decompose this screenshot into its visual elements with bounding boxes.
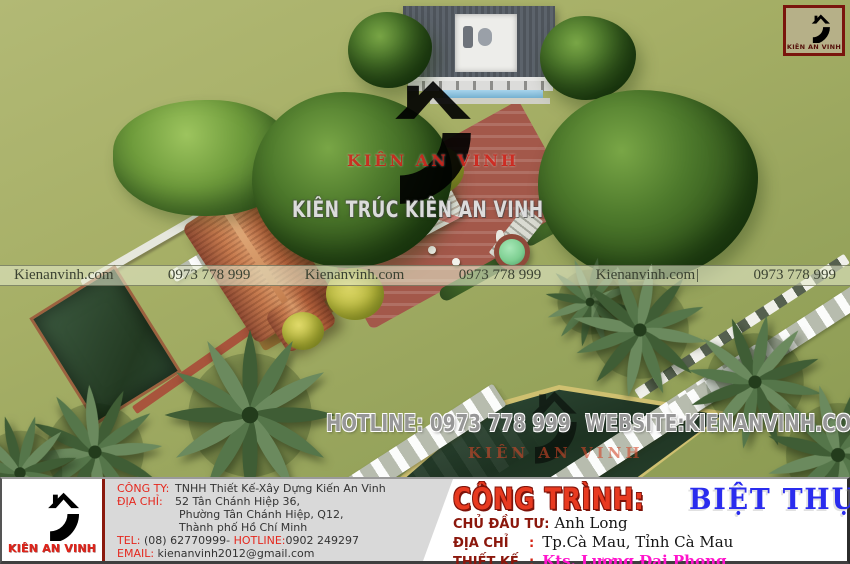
water-tank [478, 28, 492, 46]
project-address-label: ĐỊA CHỈ [453, 536, 529, 552]
kien-an-vinh-logo-icon: .boxL .arc{stroke:#4a0d08;} .boxL .cresc… [792, 10, 836, 43]
tel-row: TEL: (08) 62770999- HOTLINE:0902 249297 [117, 534, 453, 547]
colon: : [529, 536, 534, 552]
hotline-watermark: HOTLINE: 0973 778 999 WEBSITE:KIENANVINH… [326, 411, 850, 437]
watermark-logo-icon: .wmA .arc{stroke:rgba(40,40,40,.38);} .w… [315, 48, 485, 218]
band-website: Kienanvinh.com [14, 267, 114, 284]
project-title-row: CÔNG TRÌNH: BIỆT THỰ [453, 482, 847, 514]
address-line: 52 Tân Chánh Hiệp 36, [175, 495, 300, 508]
palm-tree [155, 320, 345, 477]
band-website: Kienanvinh.com [305, 267, 405, 284]
project-address-row: ĐỊA CHỈ : Tp.Cà Mau, Tỉnh Cà Mau [453, 534, 847, 552]
kien-an-vinh-logo-icon: .ftL .arc{stroke:#1a1a1a;} .ftL .crescen… [14, 485, 90, 541]
band-website: Kienanvinh.com| [596, 267, 700, 284]
website-text: WEBSITE:KIENANVINH.COM [585, 411, 850, 437]
band-phone: 0973 778 999 [168, 267, 251, 284]
architectural-render-image: .wmA .arc{stroke:rgba(40,40,40,.38);} .w… [0, 0, 850, 564]
tel-label: TEL: [117, 534, 141, 547]
address-label: ĐỊA CHỈ: [117, 495, 175, 508]
address-line: Thành phố Hồ Chí Minh [117, 521, 453, 534]
colon: : [529, 555, 534, 564]
designer-label: THIẾT KẾ [453, 555, 529, 564]
company-info-block: CÔNG TY:TNHH Thiết Kế-Xây Dựng Kiến An V… [105, 479, 453, 561]
address-row: ĐỊA CHỈ:52 Tân Chánh Hiệp 36, [117, 495, 453, 508]
watermark-title: KIÊN TRÚC KIÊN AN VINH [292, 198, 543, 223]
project-address-value: Tp.Cà Mau, Tỉnh Cà Mau [542, 534, 733, 550]
footer-divider [102, 479, 105, 561]
water-tank [463, 26, 473, 48]
hotline-value: 0902 249297 [285, 534, 358, 547]
band-phone: 0973 778 999 [754, 267, 837, 284]
project-label: CÔNG TRÌNH: [453, 485, 645, 514]
designer-value: Kts. Lương Đại Phong [542, 553, 726, 564]
tel-value: (08) 62770999- [144, 534, 230, 547]
email-value: kienanvinh2012@gmail.com [158, 547, 315, 560]
company-row: CÔNG TY:TNHH Thiết Kế-Xây Dựng Kiến An V… [117, 482, 453, 495]
company-name: TNHH Thiết Kế-Xây Dựng Kiến An Vinh [175, 482, 386, 495]
brand-name: KIÊN AN VINH [8, 542, 96, 555]
brand-logo-box: .boxL .arc{stroke:#4a0d08;} .boxL .cresc… [783, 5, 845, 56]
contact-watermark-band: Kienanvinh.com 0973 778 999 Kienanvinh.c… [0, 265, 850, 286]
company-label: CÔNG TY: [117, 482, 175, 495]
footer-logo-block: .ftL .arc{stroke:#1a1a1a;} .ftL .crescen… [2, 479, 102, 561]
watermark-brand-text: KIÊN AN VINH [347, 151, 519, 170]
pergola-column [428, 246, 436, 254]
text-cursor: | [696, 267, 699, 283]
owner-label: CHỦ ĐẦU TƯ: [453, 517, 549, 533]
hotline-label: HOTLINE: [234, 534, 286, 547]
brand-name: KIÊN AN VINH [787, 43, 841, 51]
info-footer: .ftL .arc{stroke:#1a1a1a;} .ftL .crescen… [0, 477, 850, 564]
email-row: EMAIL: kienanvinh2012@gmail.com [117, 547, 453, 560]
project-value: BIỆT THỰ [689, 484, 850, 514]
owner-value: Anh Long [554, 515, 627, 531]
hotline-text: HOTLINE: 0973 778 999 [326, 411, 571, 437]
watermark-brand-text: KIÊN AN VINH [468, 444, 644, 462]
owner-row: CHỦ ĐẦU TƯ: Anh Long [453, 515, 847, 533]
designer-row: THIẾT KẾ : Kts. Lương Đại Phong [453, 553, 847, 564]
email-label: EMAIL: [117, 547, 154, 560]
project-info-block: CÔNG TRÌNH: BIỆT THỰ CHỦ ĐẦU TƯ: Anh Lon… [453, 479, 847, 561]
address-line: Phường Tân Chánh Hiệp, Q12, [117, 508, 453, 521]
garden-tree [540, 16, 636, 100]
garden-villa-render: .wmA .arc{stroke:rgba(40,40,40,.38);} .w… [0, 0, 850, 477]
band-phone: 0973 778 999 [459, 267, 542, 284]
